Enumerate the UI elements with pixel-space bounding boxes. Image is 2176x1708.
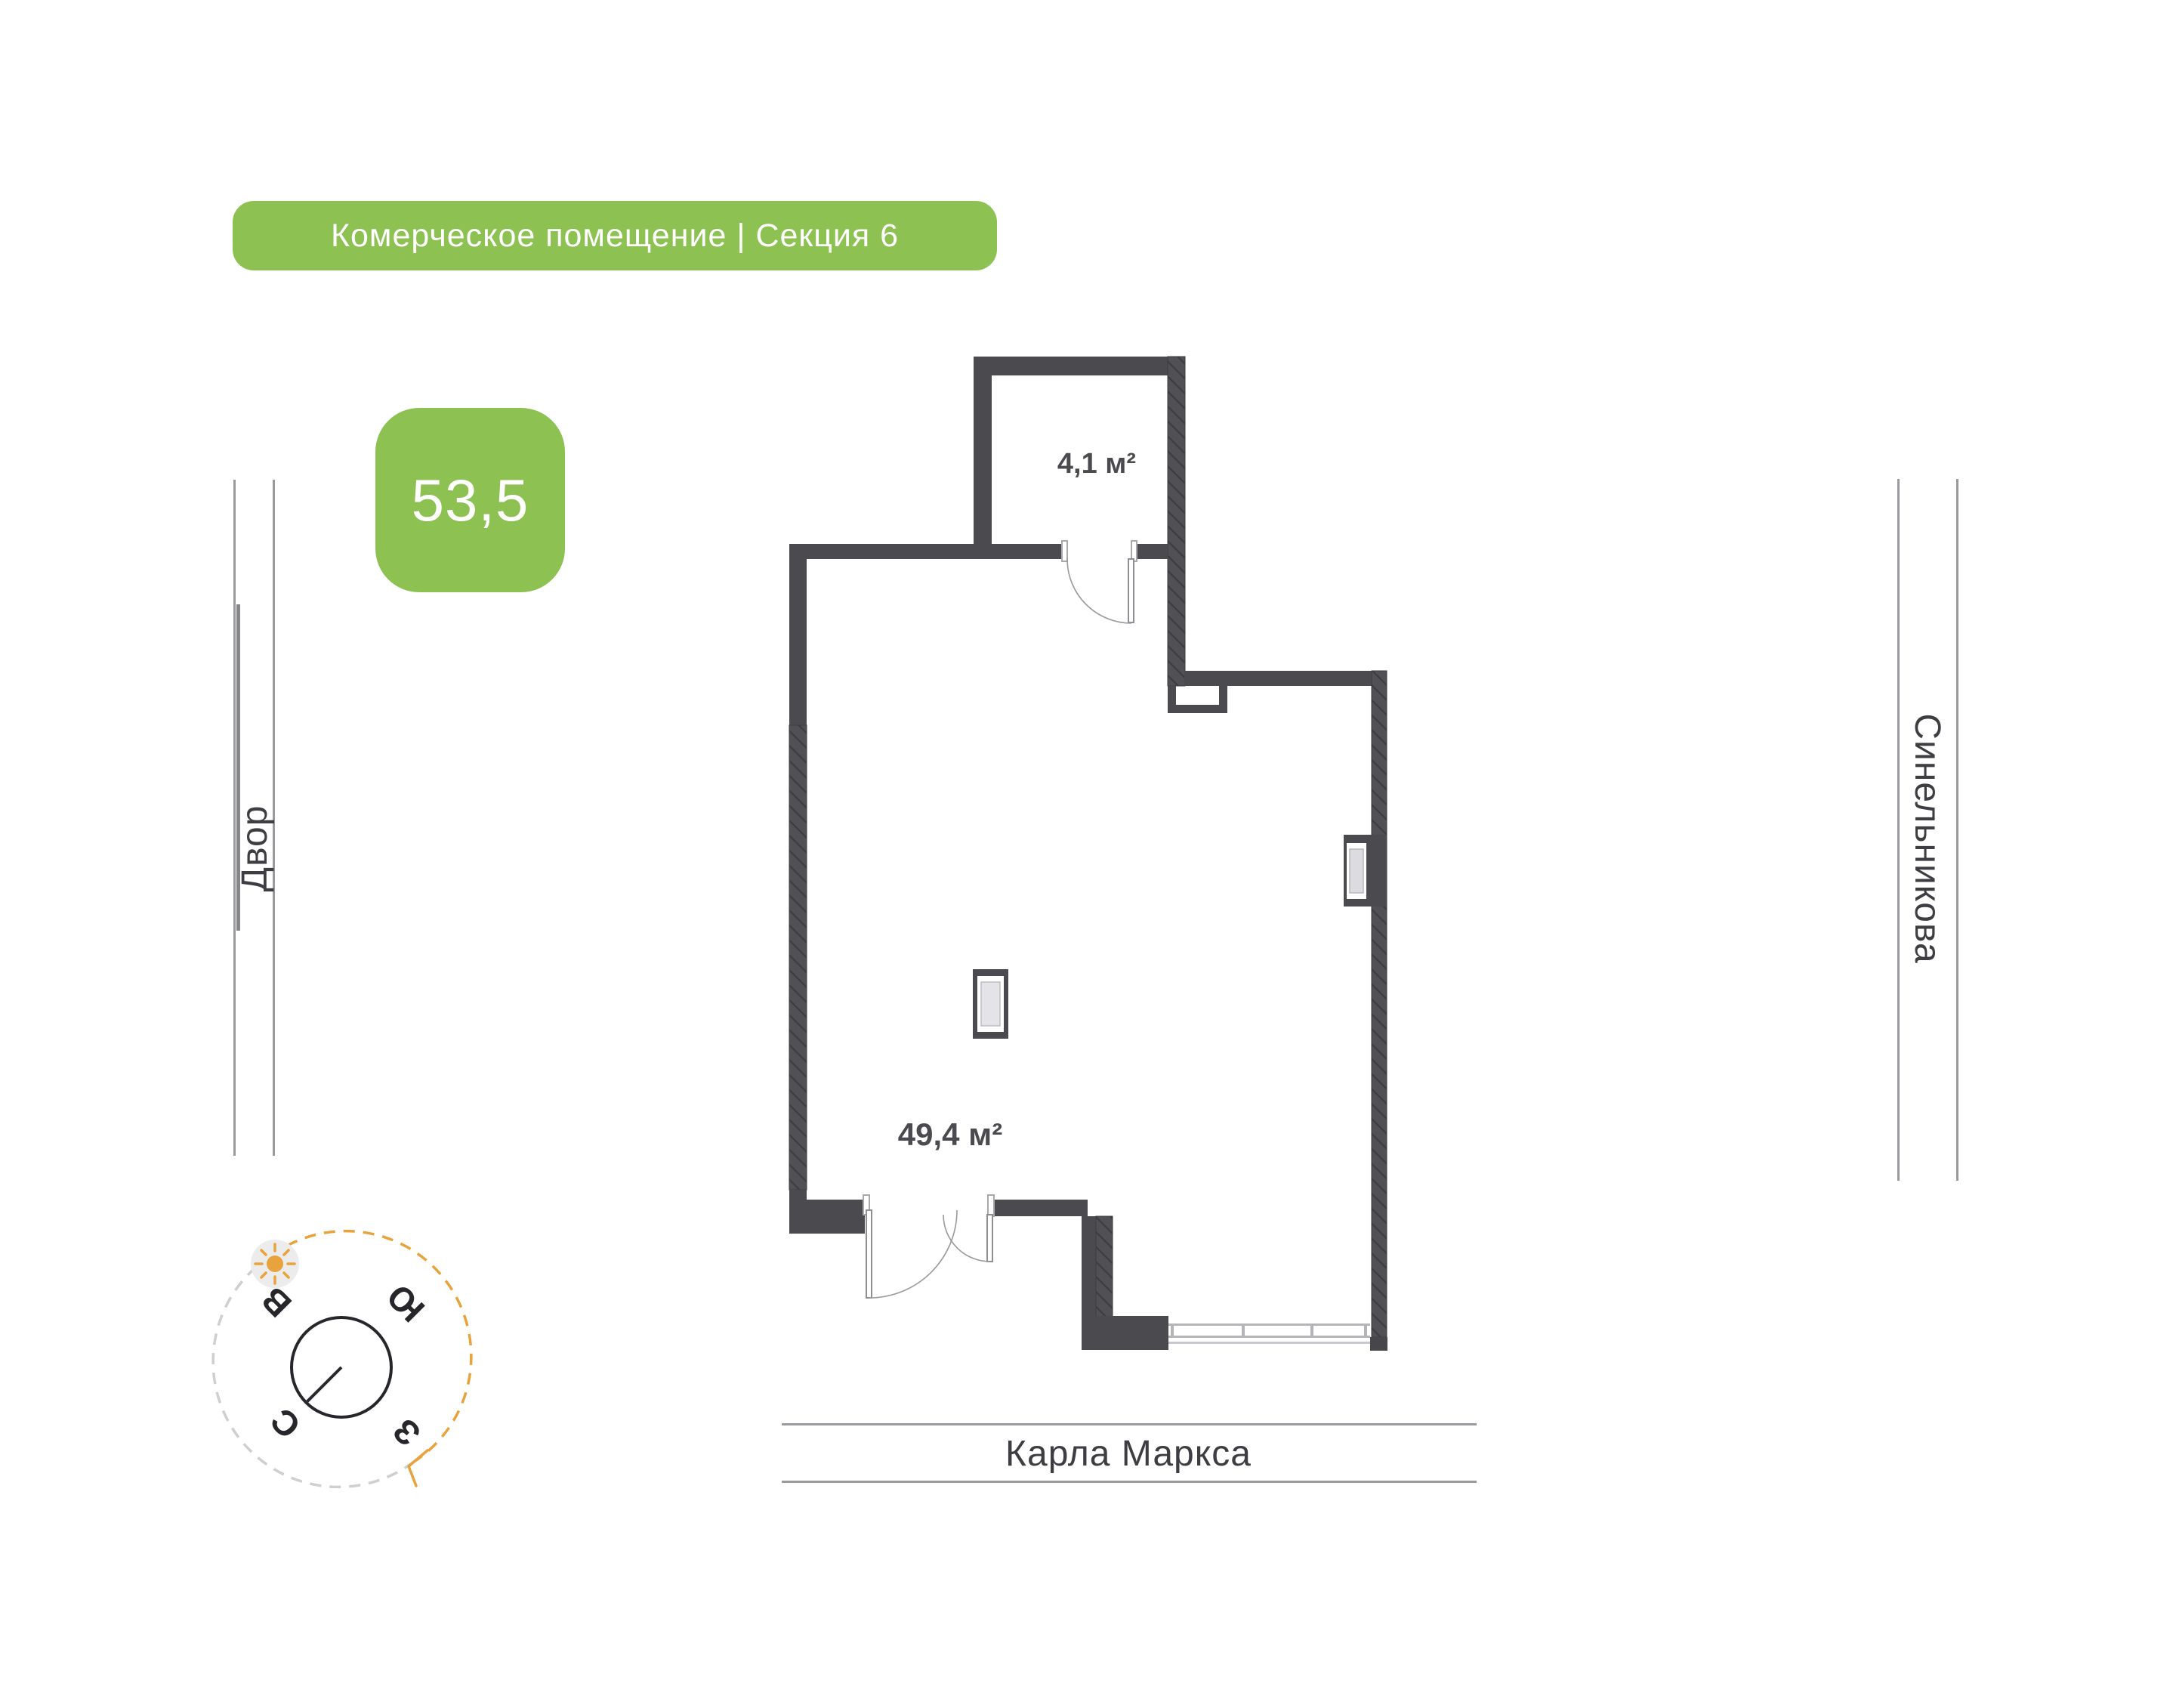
window-mullion-1 [1171, 1323, 1174, 1338]
window-mullion-4 [1364, 1323, 1367, 1338]
wall-lintel-right [1137, 544, 1168, 559]
section-title-badge: Комерческое помещение | Секция 6 [233, 201, 997, 270]
street-bottom-label: Карла Маркса [1005, 1434, 1252, 1474]
window-strip-sill [1168, 1342, 1370, 1344]
page: Комерческое помещение | Секция 6 53,5 Дв… [0, 0, 2176, 1708]
street-right-line-outer [1956, 479, 1958, 1181]
wall-bottom-left-block [789, 1200, 865, 1234]
total-area-value: 53,5 [412, 466, 529, 535]
window-strip-bottom [1168, 1336, 1370, 1338]
compass-label-south: Ю [379, 1277, 432, 1330]
room-small-area-label: 4,1 м² [1057, 448, 1136, 480]
door-jamb-entrance-right [988, 1195, 994, 1216]
total-area-badge: 53,5 [375, 408, 565, 592]
window-pane-right [1350, 849, 1363, 893]
notch-bottom [1168, 705, 1227, 713]
street-bottom: Карла Маркса [782, 1423, 1477, 1483]
wall-lintel-left [789, 544, 1062, 559]
door-leaf-entrance-main [866, 1210, 872, 1298]
section-title-text: Комерческое помещение | Секция 6 [331, 218, 899, 255]
sun-core [267, 1256, 283, 1272]
door-arc-entrance-secondary [943, 1215, 990, 1262]
compass-rose: С В Ю З [197, 1215, 492, 1510]
street-left: Двор [233, 480, 275, 1156]
storefront-window [1168, 1323, 1370, 1344]
window-strip-fill [1168, 1326, 1370, 1336]
wall-left-upper [789, 544, 807, 725]
door-jamb-interior-left [1062, 541, 1067, 561]
wall-small-room-right-hatched [1168, 357, 1185, 686]
wall-small-room-left [974, 357, 992, 559]
compass-label-west: З [385, 1411, 428, 1454]
sun-icon [251, 1240, 299, 1288]
street-right-label: Синельникова [1907, 713, 1947, 963]
wall-right-bottom-cap [1370, 1337, 1387, 1351]
door-leaf-interior [1128, 559, 1134, 622]
interior-column [973, 969, 1008, 1039]
window-mullion-3 [1310, 1323, 1313, 1338]
window-mullion-2 [1242, 1323, 1245, 1338]
street-right-line-inner [1897, 479, 1900, 1181]
wall-small-room-top [974, 357, 1185, 375]
floor-plan: 4,1 м² 49,4 м² [789, 357, 1387, 1351]
street-right: Синельникова [1897, 479, 1958, 1181]
wall-right-hatched [1372, 671, 1387, 1337]
compass-arrowhead [409, 1450, 427, 1486]
compass-label-east: В [254, 1280, 299, 1325]
wall-top-right-horizontal [1184, 671, 1387, 686]
column-core [981, 982, 1000, 1026]
junction-notch [1168, 686, 1227, 713]
wall-left-hatched [789, 725, 807, 1190]
street-left-label: Двор [235, 805, 275, 892]
street-bottom-line-bottom [782, 1481, 1477, 1483]
wall-street-side [1082, 1316, 1168, 1350]
wall-bottom-right-of-door [995, 1200, 1088, 1216]
street-bottom-line-top [782, 1423, 1477, 1425]
compass-label-north: С [263, 1401, 308, 1446]
door-leaf-entrance-secondary [987, 1215, 992, 1262]
window-strip-top [1168, 1323, 1370, 1326]
entrance-door [863, 1195, 994, 1298]
door-jamb-interior-right [1131, 541, 1137, 561]
compass: С В Ю З [197, 1215, 492, 1510]
door-arc-interior [1067, 559, 1131, 623]
room-main-area-label: 49,4 м² [898, 1117, 1002, 1152]
right-wall-window [1344, 835, 1387, 907]
